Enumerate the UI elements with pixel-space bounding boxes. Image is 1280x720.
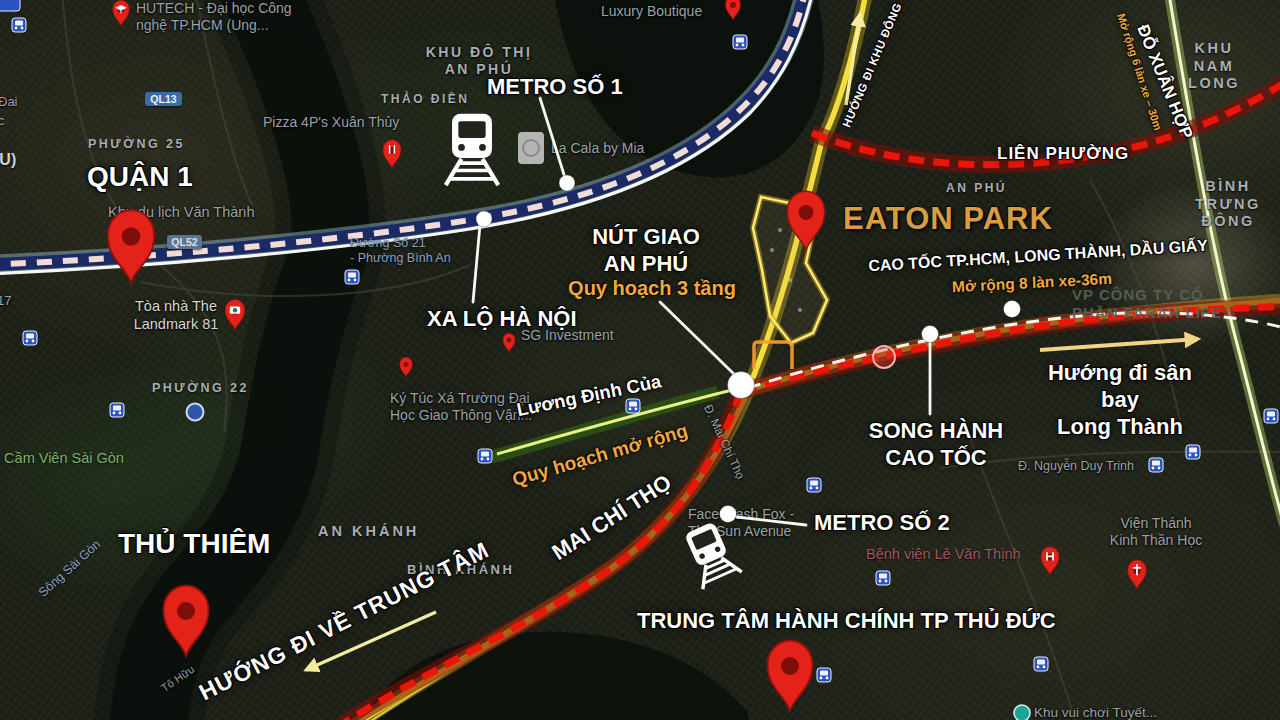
- bus-icon: [733, 35, 747, 49]
- pin-eaton-park-icon: [787, 191, 825, 250]
- camera-pin-icon: [225, 299, 245, 330]
- label-lien-phuong: LIÊN PHƯỜNG: [997, 144, 1129, 165]
- label-thu-thiem: THỦ THIÊM: [118, 527, 270, 561]
- bus-icon: [12, 18, 26, 32]
- bus-icon: [626, 399, 640, 413]
- label-quan-1: QUẬN 1: [87, 160, 193, 194]
- bus-icon: [1149, 458, 1163, 472]
- metro1-train-icon: [446, 114, 499, 185]
- callout-metro2: [737, 517, 806, 525]
- pin-thu-thiem-icon: [164, 586, 209, 657]
- callout-xa-lo-ha-noi: [473, 225, 480, 302]
- station-dot-song-hanh: [922, 326, 939, 343]
- label-trung-tam-hanh-chinh: TRUNG TÂM HÀNH CHÍNH TP THỦ ĐỨC: [637, 608, 1056, 635]
- bus-icon: [1186, 445, 1200, 459]
- bus-icon: [807, 478, 821, 492]
- pin-trung-tam-icon: [768, 641, 813, 712]
- label-xa-lo-ha-noi: XA LỘ HÀ NỘI: [427, 306, 577, 333]
- bus-icon: [876, 571, 890, 585]
- luxury-boutique-pin-icon: [726, 0, 741, 20]
- bus-icon: [110, 403, 124, 417]
- bus-icon: [23, 331, 37, 345]
- callout-nut-giao: [660, 302, 736, 376]
- station-dot-metro2: [720, 506, 737, 523]
- ky-tuc-xa-pin-icon: [400, 357, 413, 377]
- label-metro-2: METRO SỐ 2: [814, 510, 950, 537]
- station-dot-metro1: [559, 175, 575, 191]
- la-cala-logo-icon: [518, 132, 544, 164]
- label-metro-1: METRO SỐ 1: [487, 74, 623, 101]
- toll-ring-icon: [873, 346, 895, 368]
- junction-dot-an-phu: [728, 372, 755, 399]
- bus-icon: [1264, 409, 1278, 423]
- arrow-san-bay-icon: [1040, 339, 1198, 350]
- bus-stop-icons: [0, 0, 1278, 682]
- bus-icon: [478, 449, 492, 463]
- restaurant-pin-icon: [383, 140, 401, 168]
- label-huong-san-bay: Hướng đi sân bay Long Thành: [1040, 360, 1200, 440]
- station-dot-xa-lo: [476, 211, 492, 227]
- metro2-train-icon: [679, 519, 741, 589]
- label-nut-giao-note: Quy hoạch 3 tầng: [568, 276, 736, 300]
- bus-icon: [1034, 657, 1048, 671]
- park-poi-icon: [1014, 705, 1030, 720]
- map-canvas: HUTECH - Đại học Công nghệ TP.HCM (Ung..…: [0, 0, 1280, 720]
- hospital-pin-icon: [1041, 547, 1059, 575]
- poi-circle-icon: [187, 404, 204, 421]
- station-dot-east: [1004, 301, 1021, 318]
- bus-icon: [345, 270, 359, 284]
- label-song-hanh: SONG HÀNH CAO TỐC: [869, 418, 1003, 472]
- transit-badge-corner-icon: [0, 0, 20, 11]
- sg-investment-pin-icon: [503, 333, 515, 352]
- label-nut-giao-an-phu: NÚT GIAO AN PHÚ: [592, 224, 700, 278]
- bus-icon: [817, 668, 831, 682]
- gate-icon: [754, 342, 792, 369]
- pin-quan-1-icon: [108, 210, 155, 283]
- label-eaton-park: EATON PARK: [843, 200, 1053, 238]
